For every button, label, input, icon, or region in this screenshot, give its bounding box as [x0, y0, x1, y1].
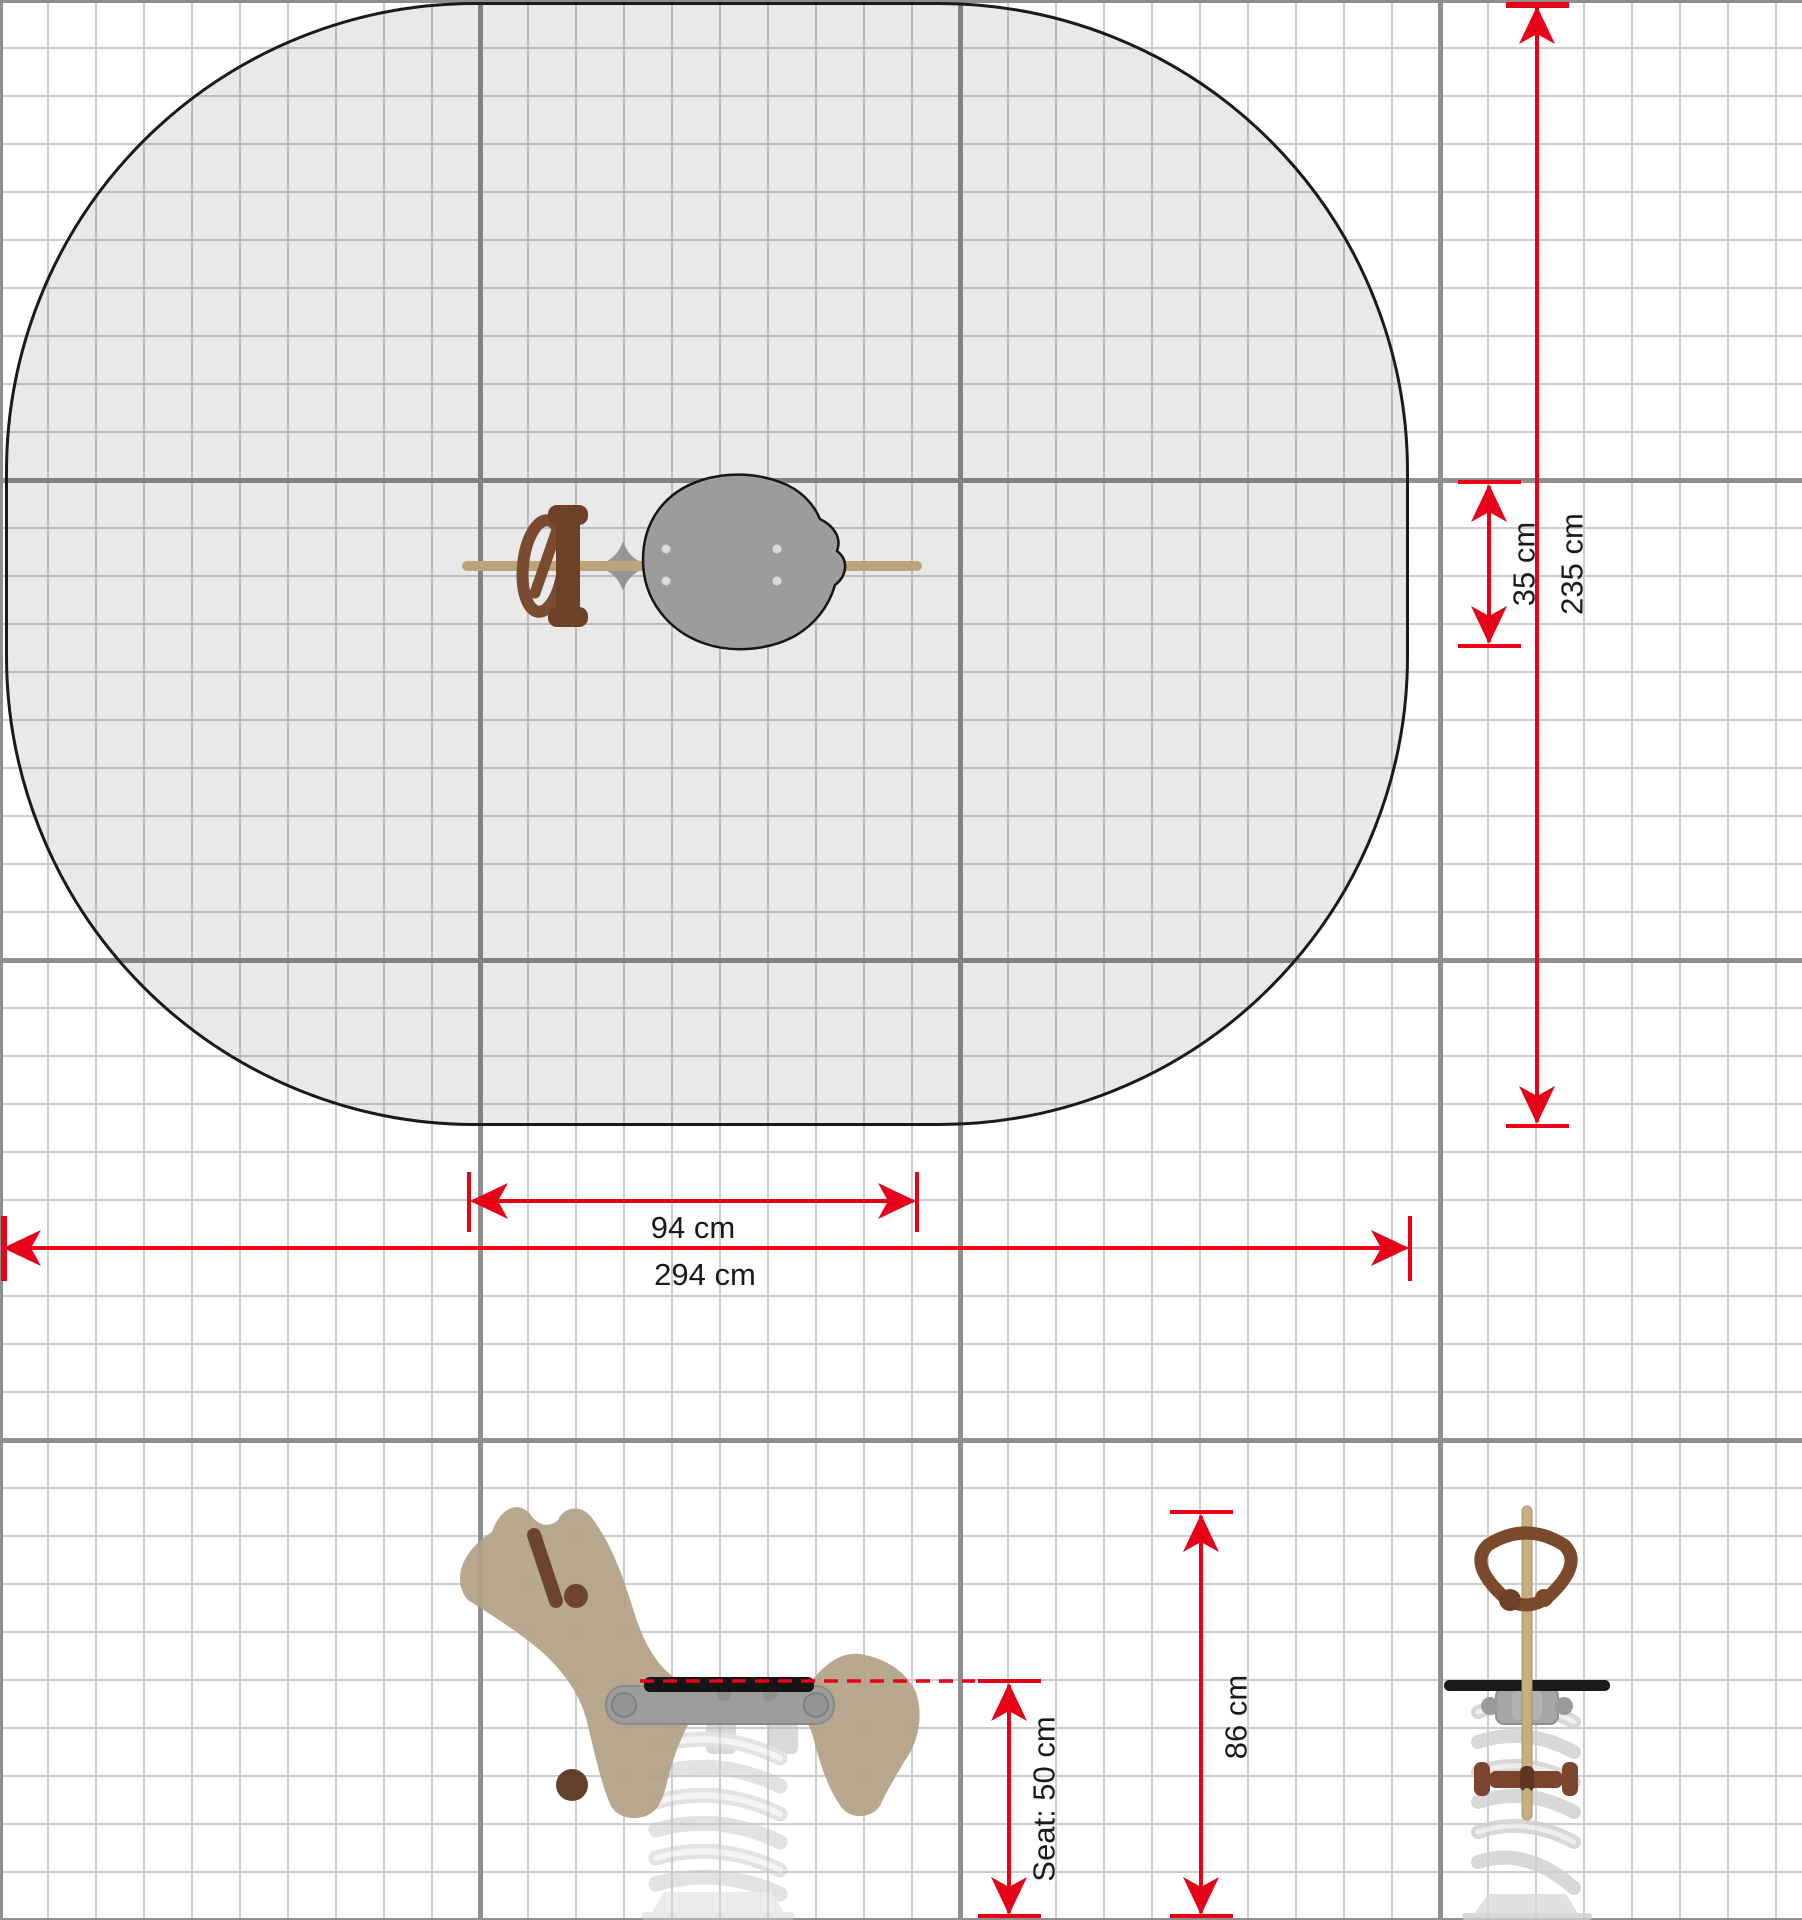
- dimension-label: 294 cm: [654, 1257, 756, 1292]
- dimension-label: 235 cm: [1555, 513, 1590, 615]
- drawing-canvas: { "drawing": { "subject": "spring-rocker…: [0, 0, 1802, 1920]
- top-view-rocker: [467, 475, 917, 650]
- dimension-label: 86 cm: [1219, 1675, 1254, 1759]
- dimension-label: 94 cm: [651, 1210, 735, 1245]
- seat-top: [643, 475, 845, 650]
- front-view-rocker: [1444, 1506, 1610, 1920]
- drawing-overlay: 94 cm 294 cm 35 cm 235 cm Seat: 50 cm: [0, 0, 1802, 1920]
- leg-bolt: [556, 1769, 588, 1801]
- dimension-label: Seat: 50 cm: [1027, 1716, 1062, 1881]
- front-post-tip: [1523, 1788, 1531, 1820]
- side-view-rocker: [460, 1507, 920, 1920]
